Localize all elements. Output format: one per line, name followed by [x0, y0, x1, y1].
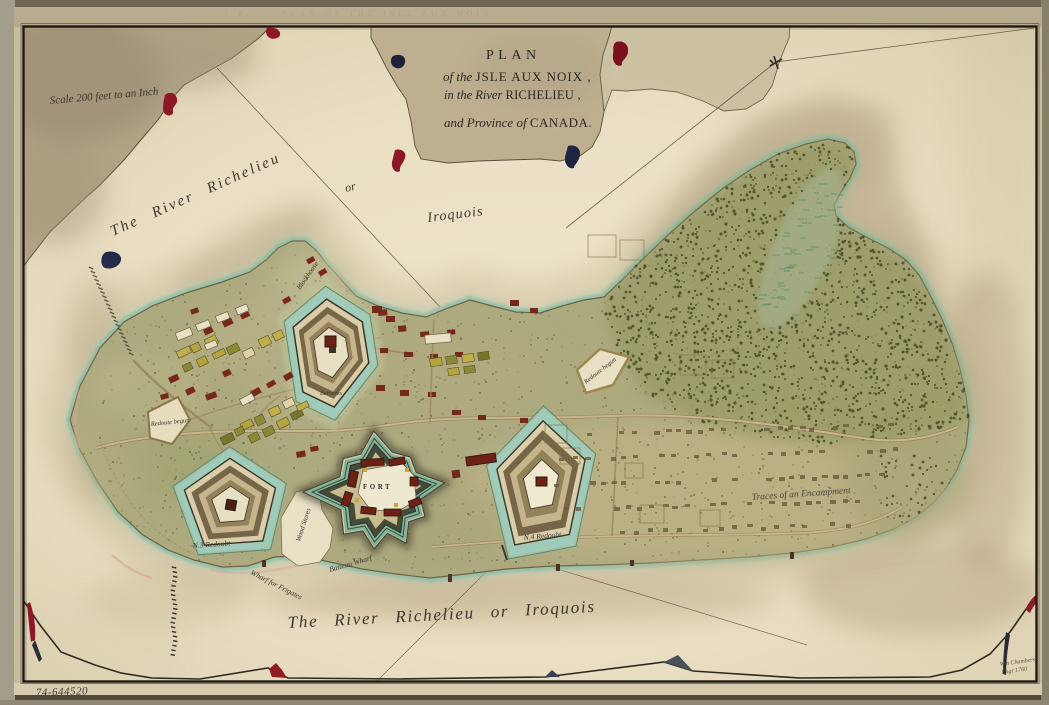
- svg-text:FORT: FORT: [363, 483, 392, 491]
- svg-text:in the River RICHELIEU ,: in the River RICHELIEU ,: [444, 88, 581, 102]
- svg-text:Barracks: Barracks: [320, 391, 343, 397]
- svg-text:and Province of CANADA.: and Province of CANADA.: [444, 115, 592, 130]
- svg-text:PLAN: PLAN: [486, 48, 541, 63]
- svg-text:. ...c.e... ..PLAN OF THE JSLE: . ...c.e... ..PLAN OF THE JSLE AUX NOIX.…: [195, 9, 559, 18]
- svg-text:74-644520: 74-644520: [36, 685, 89, 699]
- svg-text:of the JSLE AUX NOIX ,: of the JSLE AUX NOIX ,: [443, 69, 592, 84]
